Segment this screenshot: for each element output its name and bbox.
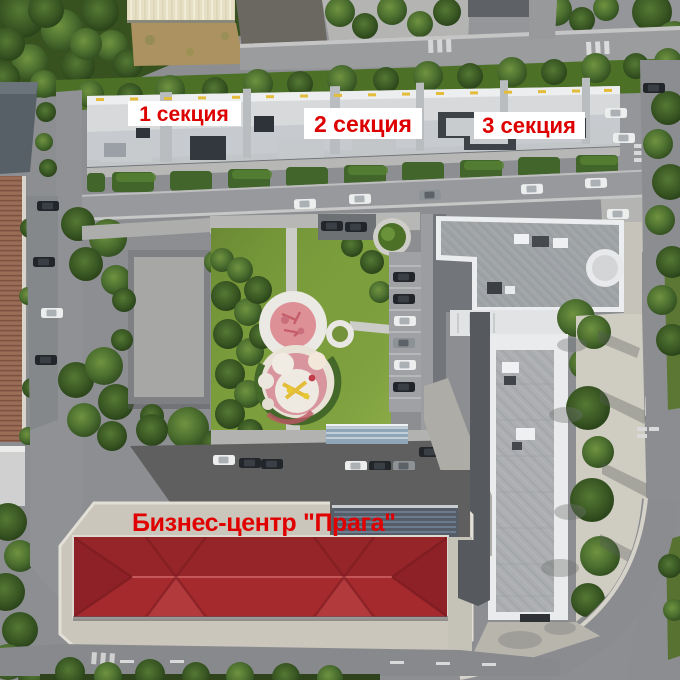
svg-text:3 секция: 3 секция xyxy=(482,113,576,138)
svg-text:Бизнес-центр "Прага": Бизнес-центр "Прага" xyxy=(132,509,396,537)
svg-text:1 секция: 1 секция xyxy=(139,103,228,126)
svg-text:2 секция: 2 секция xyxy=(314,111,412,137)
